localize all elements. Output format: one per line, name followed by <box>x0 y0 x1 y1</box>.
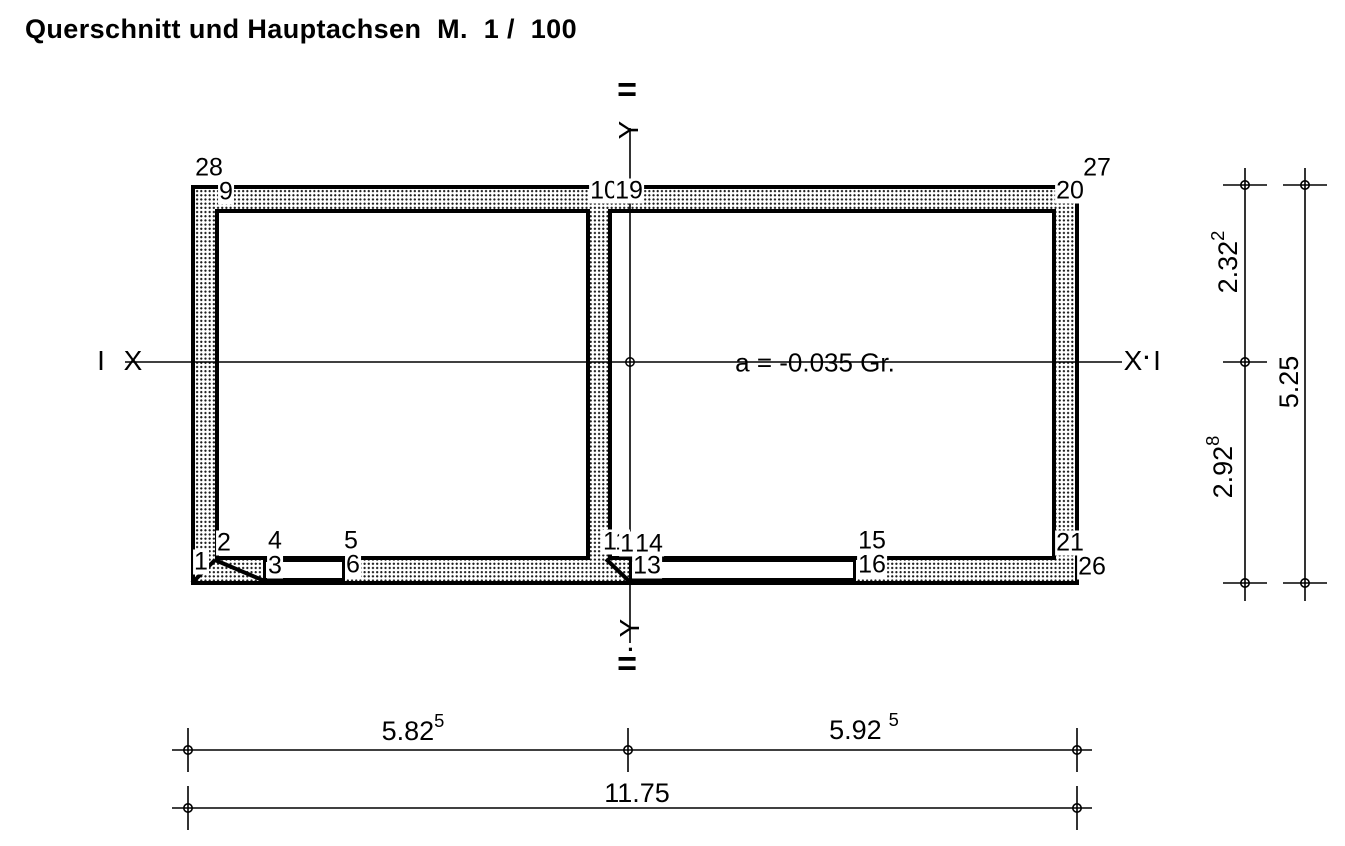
drawing-canvas: Querschnitt und Hauptachsen M. 1 / 100 <box>0 0 1345 846</box>
node-label-3: 3 <box>267 554 283 579</box>
right-dim-top-value: 2.32 <box>1213 241 1243 294</box>
right-dim-top: 2.322 <box>1212 231 1242 294</box>
node-label-27: 27 <box>1082 156 1112 181</box>
bottom-dim-total-value: 11.75 <box>604 778 670 808</box>
node-label-19: 19 <box>614 179 644 204</box>
x-axis-right-section-mark: I <box>1153 347 1161 375</box>
node-label-16: 16 <box>857 553 887 578</box>
bottom-dim-left-sup: 5 <box>434 710 444 731</box>
node-label-2: 2 <box>216 531 232 556</box>
bottom-dim-total: 11.75 <box>604 777 670 807</box>
node-label-6: 6 <box>345 553 361 578</box>
haunch-lines <box>192 559 631 583</box>
y-axis-top-label: Y <box>615 121 643 140</box>
bottom-dim-right-value: 5.92 <box>829 715 882 745</box>
node-label-1: 1 <box>193 550 209 575</box>
x-axis-right-dot: · <box>1143 347 1150 369</box>
right-dim-bottom-value: 2.92 <box>1208 446 1238 499</box>
drawing-linework <box>0 0 1345 846</box>
node-label-26: 26 <box>1077 555 1107 580</box>
y-axis-bottom-label: Y <box>616 619 644 638</box>
y-axis-bottom-equals-mark: = <box>617 647 637 681</box>
right-dim-total-value: 5.25 <box>1274 356 1304 409</box>
x-axis-right-label: X <box>1124 347 1143 375</box>
bottom-dim-left: 5.825 <box>382 715 445 745</box>
node-label-9: 9 <box>218 180 234 205</box>
right-dim-top-sup: 2 <box>1207 231 1228 241</box>
x-axis-left-section-mark: I <box>97 347 105 375</box>
node-label-4: 4 <box>267 529 283 554</box>
bottom-dim-right: 5.925 <box>829 714 899 744</box>
right-dim-bottom: 2.928 <box>1207 436 1237 499</box>
right-dim-total: 5.25 <box>1273 356 1303 409</box>
bottom-dim-right-sup: 5 <box>889 709 899 730</box>
x-axis-left-label: X <box>124 347 143 375</box>
right-dim-bottom-sup: 8 <box>1202 436 1223 446</box>
rotation-angle-annotation: a = -0.035 Gr. <box>735 348 895 379</box>
node-label-13: 13 <box>632 554 662 579</box>
node-label-20: 20 <box>1055 179 1085 204</box>
bottom-dim-left-value: 5.82 <box>382 716 435 746</box>
y-axis-top-equals-mark: = <box>617 73 637 107</box>
